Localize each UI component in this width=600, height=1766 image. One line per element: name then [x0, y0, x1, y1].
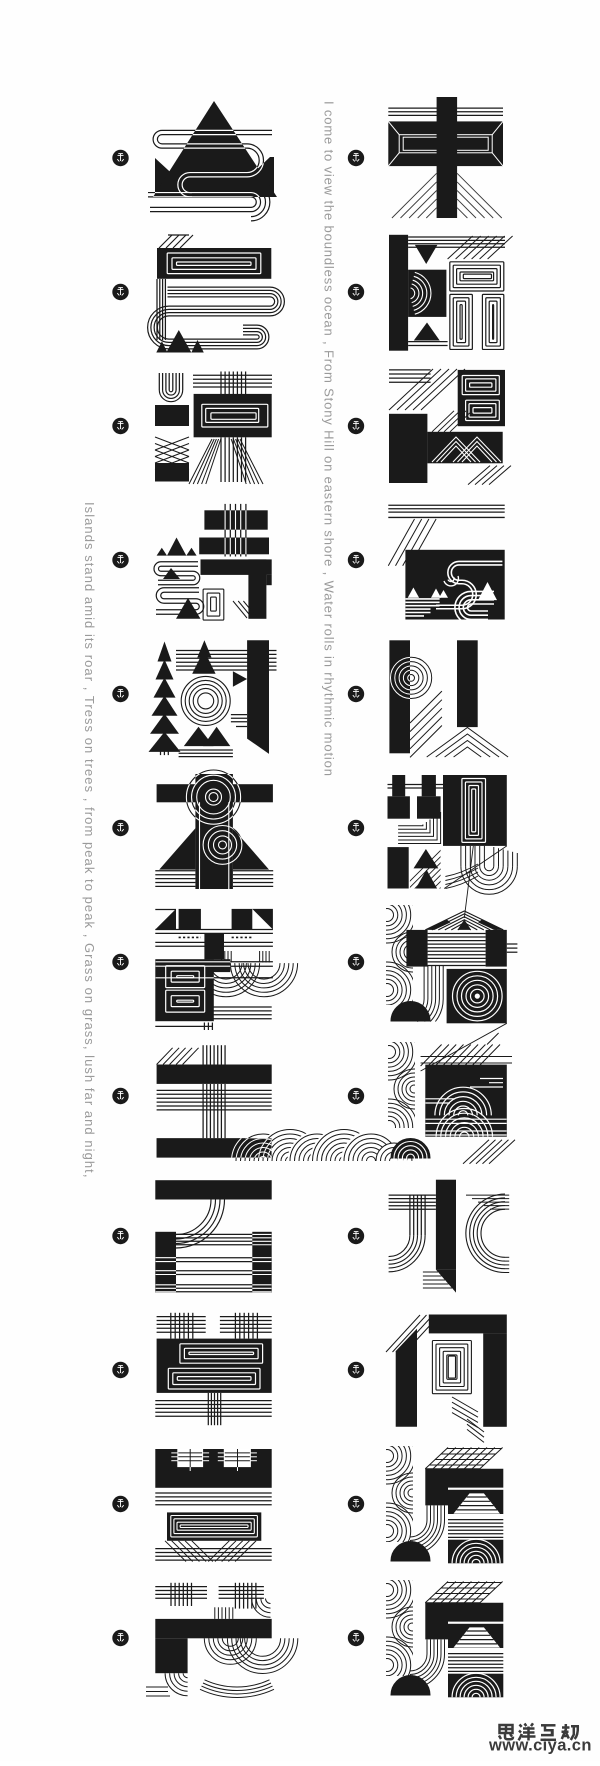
svg-text:www.ciya.cn: www.ciya.cn [488, 1737, 592, 1755]
svg-text:Islands stand amid its roar ,: Islands stand amid its roar , Tress on t… [82, 502, 97, 1178]
svg-text:I come to view the boundless o: I come to view the boundless ocean , Fro… [322, 101, 337, 777]
